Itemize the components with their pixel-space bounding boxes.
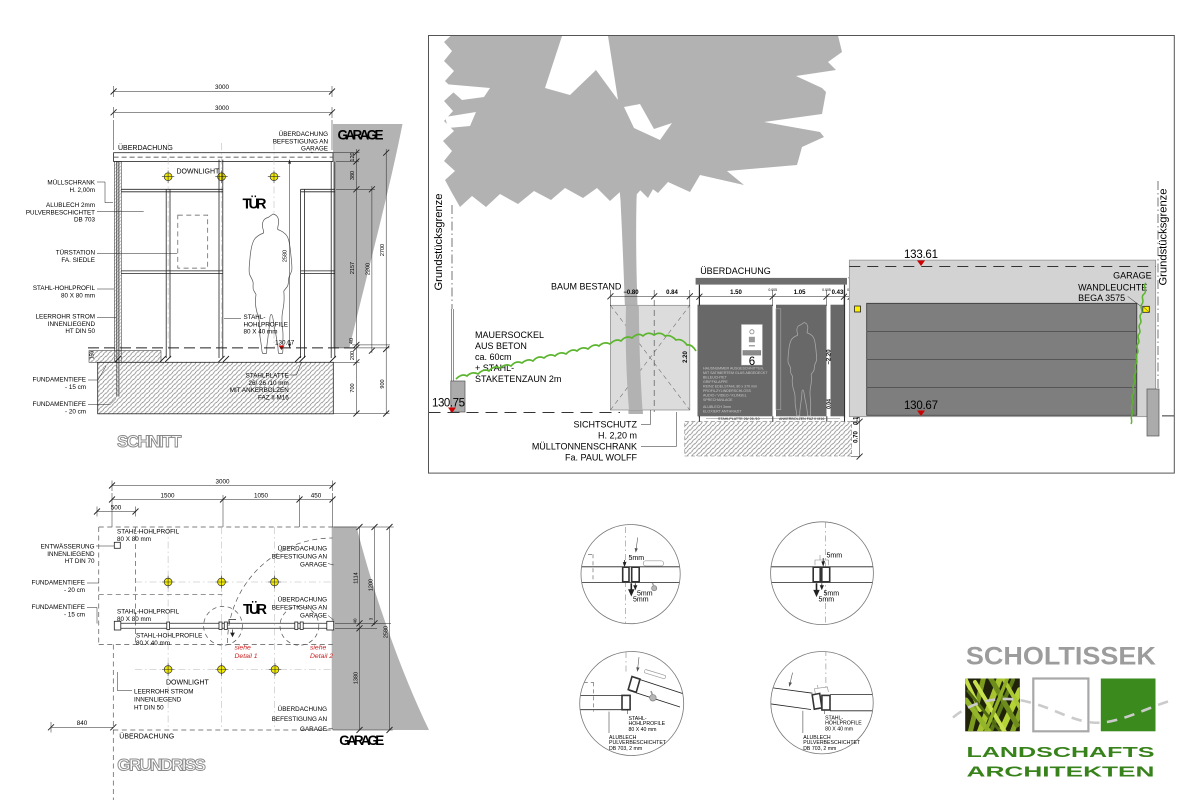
svg-text:1380: 1380 — [353, 672, 359, 684]
svg-text:- 20 cm: - 20 cm — [65, 408, 86, 415]
svg-text:HOHLPROFILE: HOHLPROFILE — [244, 321, 288, 328]
svg-text:ÜBERDACHUNG: ÜBERDACHUNG — [119, 733, 174, 741]
svg-text:STAHL-HOHLPROFIL: STAHL-HOHLPROFIL — [33, 285, 96, 292]
svg-text:500: 500 — [111, 504, 122, 511]
svg-text:TÜR: TÜR — [243, 601, 268, 618]
svg-text:FUNDAMENTIEFE: FUNDAMENTIEFE — [32, 377, 86, 384]
svg-text:- 20 cm: - 20 cm — [64, 587, 85, 594]
svg-text:0.84: 0.84 — [666, 290, 678, 296]
svg-text:3000: 3000 — [215, 84, 230, 91]
svg-text:MÜLLTONNENSCHRANK: MÜLLTONNENSCHRANK — [532, 442, 637, 452]
svg-text:−0.80: −0.80 — [623, 290, 639, 296]
svg-text:−2.20: −2.20 — [827, 349, 833, 365]
svg-text:SCHOLTISSEK: SCHOLTISSEK — [966, 643, 1156, 671]
svg-text:Grundstücksgrenze: Grundstücksgrenze — [1158, 188, 1170, 285]
svg-text:HT DIN 50: HT DIN 50 — [65, 328, 95, 335]
svg-text:- 15 cm: - 15 cm — [64, 611, 85, 618]
svg-text:H. 2,00m: H. 2,00m — [69, 187, 95, 194]
svg-text:FUNDAMENTIEFE: FUNDAMENTIEFE — [31, 580, 85, 587]
svg-text:FUNDAMENTIEFE: FUNDAMENTIEFE — [32, 401, 86, 408]
svg-text:BEGA 3575: BEGA 3575 — [1078, 293, 1125, 303]
svg-text:80 X 40 mm: 80 X 40 mm — [825, 726, 853, 732]
svg-text:REINZ EDELSTAHL 80 x 370 mm: REINZ EDELSTAHL 80 x 370 mm — [703, 385, 757, 389]
svg-text:DOWNLIGHT: DOWNLIGHT — [177, 169, 221, 176]
svg-text:2200: 2200 — [366, 263, 372, 275]
svg-text:SICHTSCHUTZ: SICHTSCHUTZ — [574, 420, 638, 430]
svg-text:120: 120 — [350, 152, 356, 161]
svg-text:STAKETENZAUN 2m: STAKETENZAUN 2m — [475, 374, 561, 384]
svg-text:FA. SIEDLE: FA. SIEDLE — [61, 257, 95, 264]
svg-text:STAHL-: STAHL- — [244, 314, 266, 321]
svg-text:HT DIN 70: HT DIN 70 — [65, 558, 95, 565]
svg-text:1.05: 1.05 — [794, 290, 806, 296]
svg-text:STAHL-HOHLPROFIL: STAHL-HOHLPROFIL — [117, 609, 180, 616]
svg-text:STAHLPLATTE: STAHLPLATTE — [246, 373, 289, 380]
svg-text:80 X 40 mm: 80 X 40 mm — [136, 640, 170, 647]
svg-text:GARAGE: GARAGE — [339, 733, 384, 748]
svg-text:40: 40 — [349, 338, 355, 344]
svg-text:PULVERBESCHICHTET: PULVERBESCHICHTET — [26, 209, 95, 216]
svg-text:STAHL-HOHLPROFIL: STAHL-HOHLPROFIL — [117, 529, 180, 536]
svg-text:MÜLLSCHRANK: MÜLLSCHRANK — [47, 179, 95, 187]
svg-text:380: 380 — [350, 171, 356, 180]
svg-text:MAUERSOCKEL: MAUERSOCKEL — [475, 330, 544, 340]
svg-text:DB 703: DB 703 — [74, 217, 96, 224]
svg-text:26/ 26 /10 mm: 26/ 26 /10 mm — [249, 380, 289, 387]
svg-text:INNENLIEGEND: INNENLIEGEND — [47, 551, 95, 558]
svg-text:133.61: 133.61 — [904, 249, 938, 261]
svg-text:40: 40 — [353, 618, 358, 624]
svg-text:GARAGE: GARAGE — [300, 726, 327, 733]
svg-text:700: 700 — [350, 383, 356, 392]
svg-text:MIT ANKERBOLZEN: MIT ANKERBOLZEN — [230, 387, 289, 394]
svg-text:AUS BETON: AUS BETON — [475, 341, 527, 351]
svg-text:MIT SATINIERTEM GLAS ABGEDECKT: MIT SATINIERTEM GLAS ABGEDECKT — [703, 371, 768, 375]
svg-text:DB 703, 2 mm: DB 703, 2 mm — [609, 746, 642, 752]
svg-text:130.67: 130.67 — [904, 400, 938, 412]
svg-text:80 X 80 mm: 80 X 80 mm — [117, 536, 151, 543]
svg-text:ALUBLECH 3mm: ALUBLECH 3mm — [703, 405, 731, 409]
svg-text:- 15 cm: - 15 cm — [65, 384, 86, 391]
svg-text:HAUSNUMMER AUSGESCHNITTEN,: HAUSNUMMER AUSGESCHNITTEN, — [703, 367, 764, 371]
svg-text:3000: 3000 — [215, 105, 230, 112]
svg-text:FAZ II M16: FAZ II M16 — [258, 394, 289, 401]
svg-text:INNENLIEGEND: INNENLIEGEND — [48, 321, 96, 328]
svg-text:Detail 1: Detail 1 — [235, 653, 258, 660]
svg-text:900: 900 — [380, 379, 386, 388]
svg-text:BELEUCHTET: BELEUCHTET — [703, 376, 728, 380]
svg-text:5mm: 5mm — [827, 553, 843, 560]
svg-text:DB 703, 2 mm: DB 703, 2 mm — [803, 746, 836, 752]
svg-text:5mm: 5mm — [819, 597, 835, 604]
svg-text:siehe: siehe — [235, 645, 251, 652]
svg-text:siehe: siehe — [310, 645, 326, 652]
svg-text:ÜBERDACHUNG: ÜBERDACHUNG — [279, 130, 328, 138]
svg-text:GARAGE: GARAGE — [300, 613, 327, 620]
svg-text:LANDSCHAFTS: LANDSCHAFTS — [967, 745, 1156, 761]
svg-text:STAHL-HOHLPROFILE: STAHL-HOHLPROFILE — [136, 633, 202, 640]
svg-text:150: 150 — [90, 351, 96, 360]
svg-text:3000: 3000 — [215, 478, 230, 485]
svg-text:Grundstücksgrenze: Grundstücksgrenze — [433, 193, 445, 290]
svg-text:LEERROHR STROM: LEERROHR STROM — [36, 314, 95, 321]
svg-text:1500: 1500 — [160, 492, 175, 499]
svg-text:ca. 60cm: ca. 60cm — [475, 352, 512, 362]
svg-text:80 X 40 mm: 80 X 40 mm — [629, 727, 657, 733]
svg-text:ÜBERDACHUNG: ÜBERDACHUNG — [700, 266, 771, 276]
svg-text:0.005: 0.005 — [822, 288, 831, 292]
svg-text:GARAGE: GARAGE — [301, 146, 328, 153]
svg-text:LEERROHR STROM: LEERROHR STROM — [134, 689, 193, 696]
svg-text:130.67: 130.67 — [275, 340, 295, 347]
svg-text:GRIFFKLAPPE: GRIFFKLAPPE — [703, 380, 728, 384]
svg-text:GARAGE: GARAGE — [1113, 271, 1152, 281]
svg-text:ÜBERDACHUNG: ÜBERDACHUNG — [278, 596, 327, 604]
svg-text:1050: 1050 — [254, 492, 269, 499]
svg-text:1.50: 1.50 — [730, 290, 742, 296]
svg-text:Detail 2: Detail 2 — [310, 653, 333, 660]
svg-text:ELOXIERT ANTHRAZIT: ELOXIERT ANTHRAZIT — [703, 410, 742, 414]
svg-text:1200: 1200 — [368, 579, 374, 591]
svg-text:TÜRSTATION: TÜRSTATION — [56, 249, 96, 257]
svg-text:2580: 2580 — [283, 250, 289, 262]
svg-text:ANKERBOLZEN FAZ II M16: ANKERBOLZEN FAZ II M16 — [779, 417, 824, 421]
svg-text:ENTWÄSSERUNG: ENTWÄSSERUNG — [41, 543, 95, 551]
svg-text:ARCHITEKTEN: ARCHITEKTEN — [967, 764, 1155, 780]
svg-text:GARAGE: GARAGE — [300, 562, 327, 569]
svg-text:0.04: 0.04 — [827, 399, 833, 409]
svg-text:200: 200 — [350, 351, 356, 360]
svg-text:FUNDAMENTIEFE: FUNDAMENTIEFE — [31, 604, 85, 611]
svg-text:1114: 1114 — [353, 572, 359, 583]
svg-text:ÜBERDACHUNG: ÜBERDACHUNG — [118, 144, 173, 152]
svg-text:BEFESTIGUNG AN: BEFESTIGUNG AN — [272, 716, 328, 723]
svg-text:2.20: 2.20 — [683, 351, 689, 363]
svg-text:GARAGE: GARAGE — [338, 128, 384, 143]
svg-text:840: 840 — [77, 720, 88, 727]
svg-text:BEFESTIGUNG AN: BEFESTIGUNG AN — [272, 605, 328, 612]
svg-text:80 X 80 mm: 80 X 80 mm — [61, 292, 95, 299]
svg-text:ÜBERDACHUNG: ÜBERDACHUNG — [278, 545, 327, 553]
svg-text:HT DIN 50: HT DIN 50 — [134, 705, 164, 712]
svg-text:2580: 2580 — [383, 626, 389, 638]
svg-text:INNENLIEGEND: INNENLIEGEND — [134, 697, 182, 704]
svg-text:ÜBERDACHUNG: ÜBERDACHUNG — [278, 705, 327, 713]
svg-text:BEFESTIGUNG AN: BEFESTIGUNG AN — [272, 554, 328, 561]
svg-text:PROFILZYLINDERSCHLOSS: PROFILZYLINDERSCHLOSS — [703, 389, 752, 393]
svg-text:SCHNITT: SCHNITT — [117, 432, 183, 451]
svg-text:450: 450 — [311, 492, 322, 499]
svg-text:2157: 2157 — [350, 262, 356, 274]
svg-text:H. 2,20 m: H. 2,20 m — [598, 431, 637, 441]
svg-text:BEFESTIGUNG AN: BEFESTIGUNG AN — [273, 138, 329, 145]
svg-text:WANDLEUCHTE: WANDLEUCHTE — [1078, 283, 1147, 293]
svg-text:80 X 80 mm: 80 X 80 mm — [117, 616, 151, 623]
svg-text:Fa. PAUL WOLFF: Fa. PAUL WOLFF — [565, 453, 638, 463]
svg-text:5mm: 5mm — [629, 555, 645, 562]
svg-text:0.70: 0.70 — [853, 431, 859, 443]
svg-text:2700: 2700 — [380, 244, 386, 256]
svg-text:ALUBLECH 2mm: ALUBLECH 2mm — [46, 202, 95, 209]
svg-text:0.005: 0.005 — [768, 288, 777, 292]
svg-text:GRUNDRISS: GRUNDRISS — [117, 756, 207, 775]
svg-text:AUDIO / VIDEO / KLINGEL: AUDIO / VIDEO / KLINGEL — [703, 394, 747, 398]
svg-text:TÜR: TÜR — [243, 196, 268, 213]
svg-text:STAHLPLATTE 26/ 26 /10: STAHLPLATTE 26/ 26 /10 — [718, 417, 760, 421]
svg-text:DOWNLIGHT: DOWNLIGHT — [166, 680, 210, 687]
svg-text:SPRECHANLAGE: SPRECHANLAGE — [703, 398, 733, 402]
svg-text:0.43: 0.43 — [832, 290, 844, 296]
svg-text:BAUM BESTAND: BAUM BESTAND — [551, 282, 622, 292]
svg-text:80 X 40 mm: 80 X 40 mm — [244, 329, 278, 336]
svg-text:5mm: 5mm — [633, 597, 649, 604]
